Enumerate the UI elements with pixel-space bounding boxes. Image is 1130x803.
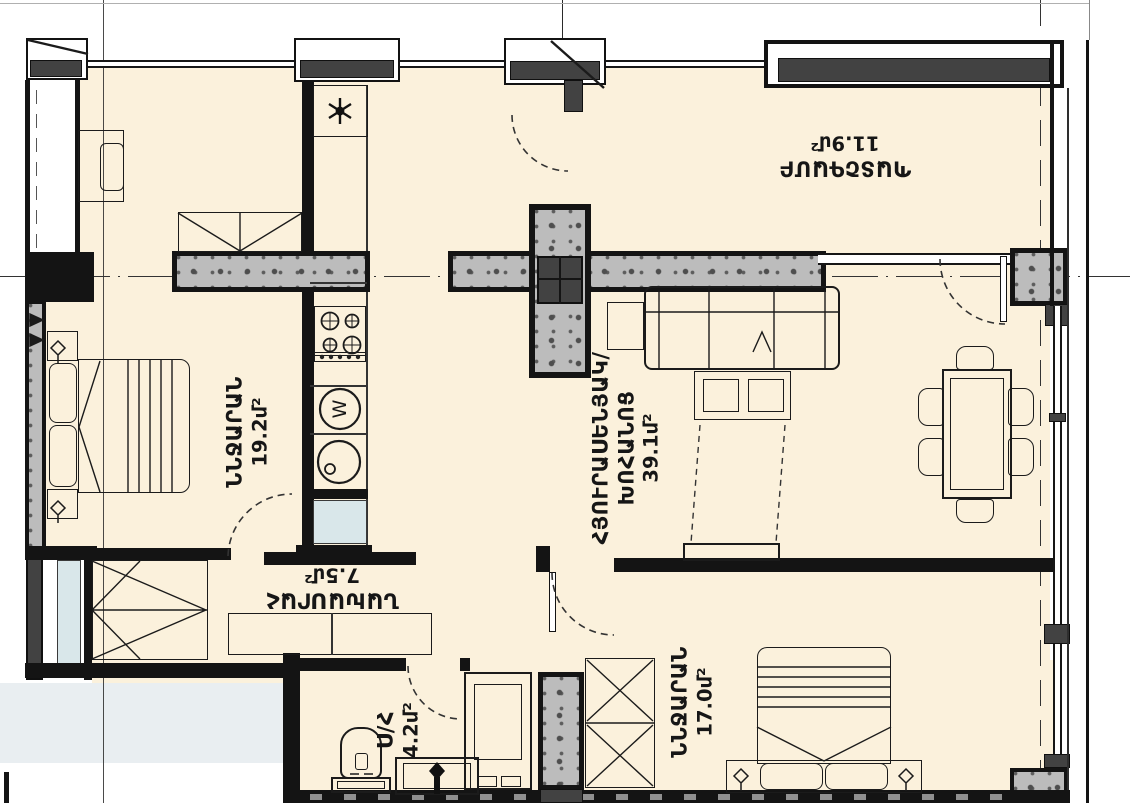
fridge — [313, 85, 368, 137]
kitchen-wall — [302, 80, 314, 547]
stove — [314, 306, 366, 356]
parapet-kitchen-fill — [300, 60, 394, 78]
kitchen-counter-edge — [366, 85, 368, 545]
hallway-name: ՆԱԽԱՍՐԱՀ — [265, 587, 398, 613]
counter-divider-1 — [310, 282, 367, 284]
bathroom-column-base — [540, 789, 583, 803]
floor-plan: W — [0, 0, 1130, 803]
living-area: 39.1մ² — [640, 351, 664, 544]
left-wall-block — [25, 252, 94, 302]
bed2-headboard — [726, 760, 922, 793]
center-column-core-hline — [537, 278, 583, 280]
bedroom1-label: ՆՆՋԱՐԱՆ 19.2մ² — [222, 376, 271, 488]
balcony-door-leaf — [1000, 256, 1007, 322]
shower-unit-inner — [474, 684, 522, 760]
coffee-table-tray-left — [703, 379, 739, 412]
bedroom2-door-jamb — [536, 546, 550, 572]
dining-chair-right-2 — [1008, 438, 1034, 476]
center-column-core-vline — [559, 256, 561, 304]
window-top-1 — [88, 60, 294, 68]
wall-stub-balcony-door — [564, 80, 583, 112]
hall-vertical-wall — [283, 653, 300, 803]
living-name-line2: ԽՈՀԱՆՈՑ — [614, 351, 640, 544]
window-top-3 — [606, 60, 764, 68]
bathroom-top-wall — [300, 658, 406, 671]
bedroom2-area: 17.0մ² — [693, 646, 717, 758]
closet-bedroom2 — [585, 658, 655, 788]
balcony-window — [818, 253, 1014, 265]
left-wall-cavity-dash — [36, 90, 37, 248]
hallway-area: 7.5մ² — [265, 563, 398, 587]
dining-chair-top — [956, 346, 994, 370]
balcony-label: ՊԱՏՇԳԱՄԲ 11.9մ² — [779, 131, 912, 180]
dining-table-top — [950, 378, 1004, 490]
right-column — [1010, 248, 1068, 306]
top-border-line — [0, 3, 1090, 4]
nightstand-bed1-top — [47, 331, 78, 361]
bay-inner-wall — [84, 558, 92, 680]
stove-knob-strip — [314, 352, 366, 362]
floor-balcony-edge — [605, 68, 764, 88]
pillow-bed2-right — [825, 763, 888, 790]
left-wall-outer — [25, 80, 30, 256]
right-window-mullion — [1049, 413, 1066, 422]
hall-console — [228, 613, 432, 655]
desk-chair — [100, 143, 124, 191]
corner-tick-line — [1089, 0, 1090, 40]
bay-outer-wall — [26, 558, 43, 680]
dining-chair-right-1 — [1008, 388, 1034, 426]
counter-divider-3 — [310, 433, 367, 435]
living-label: ՀՅՈՒՐԱՍԵՆՅԱԿ/ ԽՈՀԱՆՈՑ 39.1մ² — [589, 351, 664, 544]
coffee-table-tray-right — [748, 379, 784, 412]
dining-chair-left-2 — [918, 438, 944, 476]
bedroom2-name: ՆՆՋԱՐԱՆ — [667, 646, 693, 758]
shower-foot-right — [501, 776, 521, 787]
balcony-name: ՊԱՏՇԳԱՄԲ — [779, 155, 912, 181]
pillow-bed2-left — [760, 763, 823, 790]
pillow-bed1-a — [49, 363, 77, 423]
bedroom1-area: 19.2մ² — [248, 376, 272, 488]
window-top-2 — [400, 60, 504, 68]
vanity-sink-basin — [403, 763, 471, 789]
dining-chair-left-1 — [918, 388, 944, 426]
right-window-lower — [1053, 644, 1062, 756]
washer-letter: W — [327, 396, 353, 422]
nightstand-bed1-bottom — [47, 489, 78, 519]
axis-line-vertical-center — [562, 0, 563, 40]
kitchen-glass-panel — [313, 500, 367, 544]
living-name-line1: ՀՅՈՒՐԱՍԵՆՅԱԿ/ — [589, 351, 615, 544]
bathroom-column — [538, 672, 584, 790]
right-window-upper — [1053, 306, 1062, 624]
beam-left — [172, 251, 370, 292]
bay-glass-panel — [57, 560, 81, 678]
balcony-area: 11.9մ² — [779, 131, 912, 155]
sofa — [644, 286, 840, 370]
bathroom-name: Ս/Հ — [373, 702, 399, 758]
bedroom2-north-wall — [614, 558, 1060, 572]
bed1-body — [78, 359, 190, 493]
edge-mark-bottom-left — [4, 772, 9, 803]
bedroom1-south-wall — [25, 548, 231, 560]
bathroom-door-jamb — [460, 658, 470, 671]
kitchen-glass-divider — [310, 489, 368, 499]
hallway-label: ՆԱԽԱՍՐԱՀ 7.5մ² — [265, 563, 398, 612]
tv-unit — [683, 543, 780, 561]
hall-wardrobe — [92, 560, 208, 660]
parapet-center-fill — [510, 61, 600, 80]
bedroom1-name: ՆՆՋԱՐԱՆ — [222, 376, 248, 488]
counter-divider-2 — [310, 385, 367, 387]
shower-foot-left — [477, 776, 497, 787]
parapet-top-left-fill — [30, 60, 82, 77]
outside-area — [0, 683, 285, 763]
bathroom-label: Ս/Հ 4.2մ² — [373, 702, 422, 758]
wardrobe-bedroom1 — [178, 212, 302, 252]
toilet-tank-inner — [337, 781, 385, 789]
right-outer-line-1 — [1067, 88, 1069, 790]
hall-console-divider — [331, 613, 333, 655]
toilet-drain — [355, 753, 368, 770]
right-outer-line-2 — [1086, 40, 1089, 803]
bottom-wall-left — [25, 663, 285, 678]
bedroom2-door-leaf — [549, 572, 556, 632]
balcony-side-wall — [1050, 40, 1054, 306]
bathroom-area: 4.2մ² — [399, 702, 423, 758]
pillow-bed1-b — [49, 425, 77, 487]
side-table — [607, 302, 644, 350]
balcony-parapet-fill — [778, 58, 1050, 82]
bed2-body — [757, 647, 891, 764]
axis-line-vertical-right — [1040, 0, 1041, 790]
dining-chair-bottom — [956, 499, 994, 523]
left-wall-concrete — [25, 300, 46, 550]
bedroom2-label: ՆՆՋԱՐԱՆ 17.0մ² — [667, 646, 716, 758]
